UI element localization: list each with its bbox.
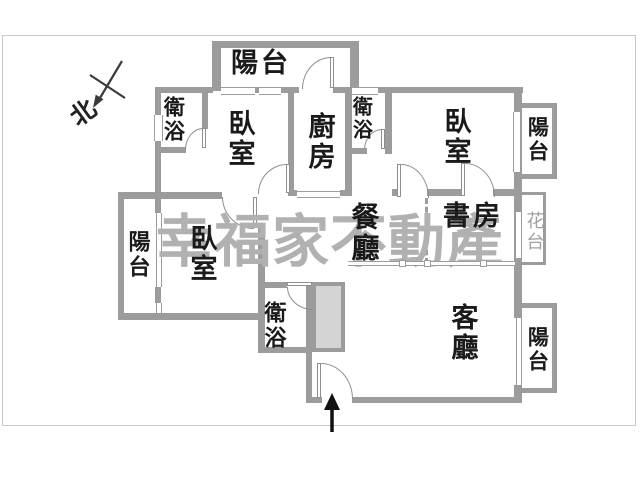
room-label-bedroom-top-left: 臥室 xyxy=(225,109,253,169)
room-label-study: 書房 xyxy=(443,203,503,231)
wall xyxy=(493,189,522,196)
wall xyxy=(385,93,392,154)
room-label-balcony-bottom-right: 陽台 xyxy=(526,326,547,374)
wall xyxy=(212,41,221,91)
window xyxy=(259,87,281,95)
wall xyxy=(552,303,557,393)
wall xyxy=(427,189,462,196)
wall xyxy=(514,258,522,318)
wall xyxy=(378,87,523,93)
floor-plan: 幸福家不動產 陽台 衛浴 臥室 廚房 衛浴 臥室 陽台 陽台 臥室 餐廳 書房 … xyxy=(0,0,640,480)
entrance-arrow-icon xyxy=(318,392,346,434)
window xyxy=(221,87,255,95)
window-post xyxy=(399,260,406,267)
compass-north-icon: 北 xyxy=(60,45,140,140)
door-leaf xyxy=(287,282,312,286)
window xyxy=(297,191,340,198)
wall xyxy=(306,352,312,403)
wall xyxy=(120,192,222,199)
room-label-balcony-left: 陽台 xyxy=(125,230,147,280)
wall xyxy=(350,41,359,91)
window xyxy=(352,87,378,95)
wall xyxy=(258,282,287,288)
door-leaf xyxy=(461,163,465,196)
door-leaf xyxy=(397,164,401,197)
window-post xyxy=(424,260,431,267)
room-label-bedroom-left: 臥室 xyxy=(187,224,215,284)
room-label-balcony-right: 陽台 xyxy=(526,116,547,164)
room-label-kitchen: 廚房 xyxy=(305,112,333,172)
window xyxy=(516,318,522,385)
window-post xyxy=(480,260,487,267)
wall xyxy=(161,147,186,153)
utility-shaft xyxy=(312,282,345,352)
window xyxy=(156,303,162,313)
wall xyxy=(521,262,546,265)
wall xyxy=(202,93,208,129)
window xyxy=(513,112,521,172)
room-label-bath-bottom: 衛浴 xyxy=(261,301,283,351)
wall xyxy=(340,190,345,196)
room-label-bath-top-left: 衛浴 xyxy=(162,96,183,144)
room-label-balcony-top: 陽台 xyxy=(231,50,291,78)
room-label-dining: 餐廳 xyxy=(349,202,378,264)
wall xyxy=(352,397,522,403)
window xyxy=(515,212,522,258)
wall xyxy=(522,174,557,179)
room-label-bath-top-mid: 衛浴 xyxy=(351,96,371,142)
door-leaf xyxy=(286,164,290,193)
room-label-bedroom-top-right: 臥室 xyxy=(441,107,469,167)
door-leaf xyxy=(330,57,334,88)
wall xyxy=(522,388,557,393)
wall xyxy=(521,192,546,195)
wall xyxy=(155,287,161,303)
room-label-flower-stand: 花台 xyxy=(524,211,542,253)
wall xyxy=(514,385,522,403)
wall xyxy=(552,103,557,179)
room-label-living-room: 客廳 xyxy=(448,303,476,363)
wall xyxy=(212,41,359,48)
wall xyxy=(155,87,161,199)
door-leaf xyxy=(202,128,206,148)
door-leaf xyxy=(381,129,385,149)
wall xyxy=(118,313,264,320)
wall xyxy=(118,192,124,319)
